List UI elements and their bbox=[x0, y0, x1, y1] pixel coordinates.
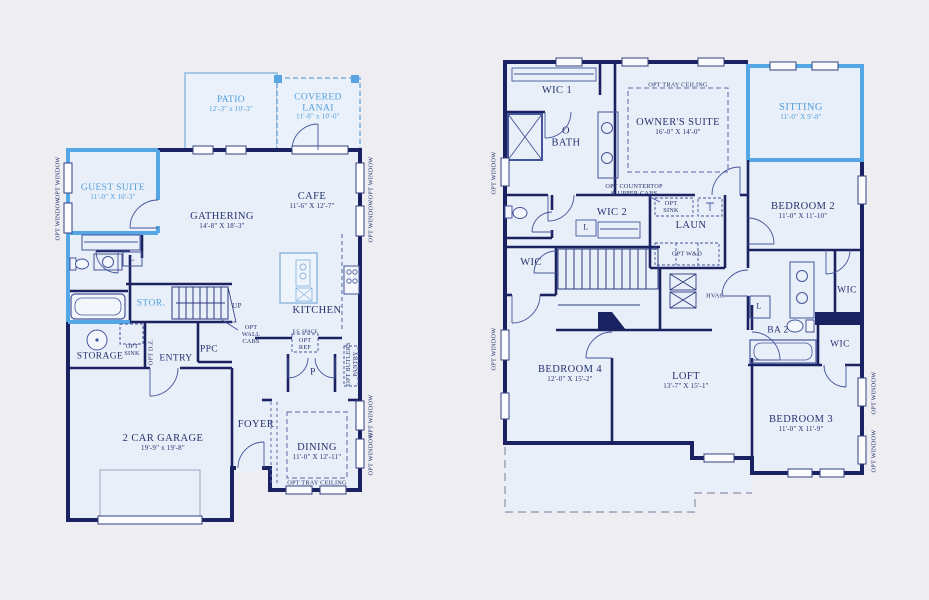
stairs-up-label: UP bbox=[232, 303, 242, 311]
room-label-patio: PATIO12'-3" x 10'-3" bbox=[209, 95, 253, 113]
room-label-owners-bath: O BATH bbox=[548, 125, 584, 149]
room-label-sitting: SITTING11'-0" X 9'-8" bbox=[779, 102, 823, 122]
room-label-stor: STOR. bbox=[137, 299, 166, 310]
opt-window-label: OPT WINDOW bbox=[490, 152, 497, 195]
opt-wall-cabs-label: OPT WALL CABS bbox=[236, 324, 266, 346]
room-label-guest-suite: GUEST SUITE11'-0" X 10'-3" bbox=[81, 183, 145, 201]
room-label-covered-lanai: COVERED LANAI11'-8" x 10'-0" bbox=[286, 92, 350, 121]
room-label-ppc: PPC bbox=[200, 345, 218, 356]
room-label-storage: STORAGE bbox=[77, 352, 123, 363]
room-label-kitchen: KITCHEN bbox=[293, 305, 342, 317]
room-label-laundry: LAUN bbox=[676, 220, 707, 232]
opt-window-label: OPT WINDOW bbox=[367, 157, 374, 200]
kitchen-island bbox=[280, 253, 317, 303]
owners-tray-ceiling-label: OPT TRAY CEILING bbox=[648, 81, 708, 88]
lanai-post-icon bbox=[274, 75, 282, 83]
room-label-loft: LOFT13'-7" X 15'-1" bbox=[663, 371, 708, 391]
floor-plan-canvas: PATIO12'-3" x 10'-3" COVERED LANAI11'-8"… bbox=[0, 0, 929, 600]
sink-icon bbox=[103, 257, 114, 268]
fs-space-label: F.S. SPACE bbox=[292, 330, 317, 336]
room-label-pantry: P bbox=[310, 368, 316, 379]
opt-window-label: OPT WINDOW bbox=[870, 372, 877, 415]
hvac-label: HVAC bbox=[706, 292, 724, 299]
room-label-bedroom2: BEDROOM 211'-0" X 11'-10" bbox=[771, 201, 835, 221]
room-label-wic-top-right: WIC bbox=[837, 286, 857, 297]
room-label-dining: DINING11'-0" X 12'-11" bbox=[293, 442, 342, 462]
wall-block bbox=[815, 312, 862, 325]
room-label-wic1: WIC 1 bbox=[542, 85, 572, 97]
room-label-cafe: CAFE11'-6" X 12'-7" bbox=[289, 191, 334, 211]
room-label-wic2: WIC 2 bbox=[597, 207, 627, 219]
opt-wd-label: OPT W&D bbox=[672, 250, 702, 257]
room-label-bedroom4: BEDROOM 412'-0" X 15'-2" bbox=[538, 364, 602, 384]
water-heater-icon bbox=[95, 338, 98, 341]
opt-window-label: OPT WINDOW bbox=[367, 200, 374, 243]
opt-window-label: OPT WINDOW bbox=[54, 198, 61, 241]
opt-sink-label: OPT SINK bbox=[121, 343, 143, 357]
linen-label: L bbox=[129, 255, 134, 264]
toilet-icon bbox=[513, 208, 527, 219]
room-label-owners-suite: OWNER'S SUITE16'-0" X 14'-0" bbox=[636, 117, 720, 137]
toilet-icon bbox=[787, 320, 803, 332]
room-label-foyer: FOYER bbox=[238, 419, 274, 431]
room-label-garage: 2 CAR GARAGE19'-9" x 19'-8" bbox=[123, 433, 204, 453]
room-label-entry: ENTRY bbox=[159, 354, 192, 365]
room-label-wic-bottom-right: WIC bbox=[830, 340, 850, 351]
opt-countertop-label: OPT COUNTERTOP & UPPER CABS bbox=[605, 183, 662, 197]
opt-sink-label: OPT SINK bbox=[659, 200, 683, 214]
opt-window-label: OPT WINDOW bbox=[870, 430, 877, 473]
opt-butlers-pantry-label: OPT BUTLERS PANTRY bbox=[345, 341, 359, 387]
room-label-wic-left: WIC bbox=[520, 257, 542, 269]
linen-label: L bbox=[756, 303, 761, 312]
opt-window-label: OPT WINDOW bbox=[490, 328, 497, 371]
opt-window-label: OPT WINDOW bbox=[367, 433, 374, 476]
toilet-icon bbox=[76, 259, 89, 269]
room-label-bedroom3: BEDROOM 311'-0" X 11'-9" bbox=[769, 414, 833, 434]
opt-dz-label: OPT D.Z. bbox=[147, 339, 154, 366]
opt-window-label: OPT WINDOW bbox=[367, 395, 374, 438]
linen-label: L bbox=[583, 224, 588, 233]
opt-window-label: OPT WINDOW bbox=[54, 157, 61, 200]
room-label-bath2: BA 2 bbox=[767, 326, 788, 337]
dining-tray-ceiling-label: OPT TRAY CEILING bbox=[287, 479, 347, 486]
garage-door bbox=[98, 516, 202, 524]
opt-ref-label: OPT REF bbox=[295, 337, 315, 351]
room-label-gathering: GATHERING14'-8" X 18'-3" bbox=[190, 211, 254, 231]
lanai-post-icon bbox=[351, 75, 359, 83]
